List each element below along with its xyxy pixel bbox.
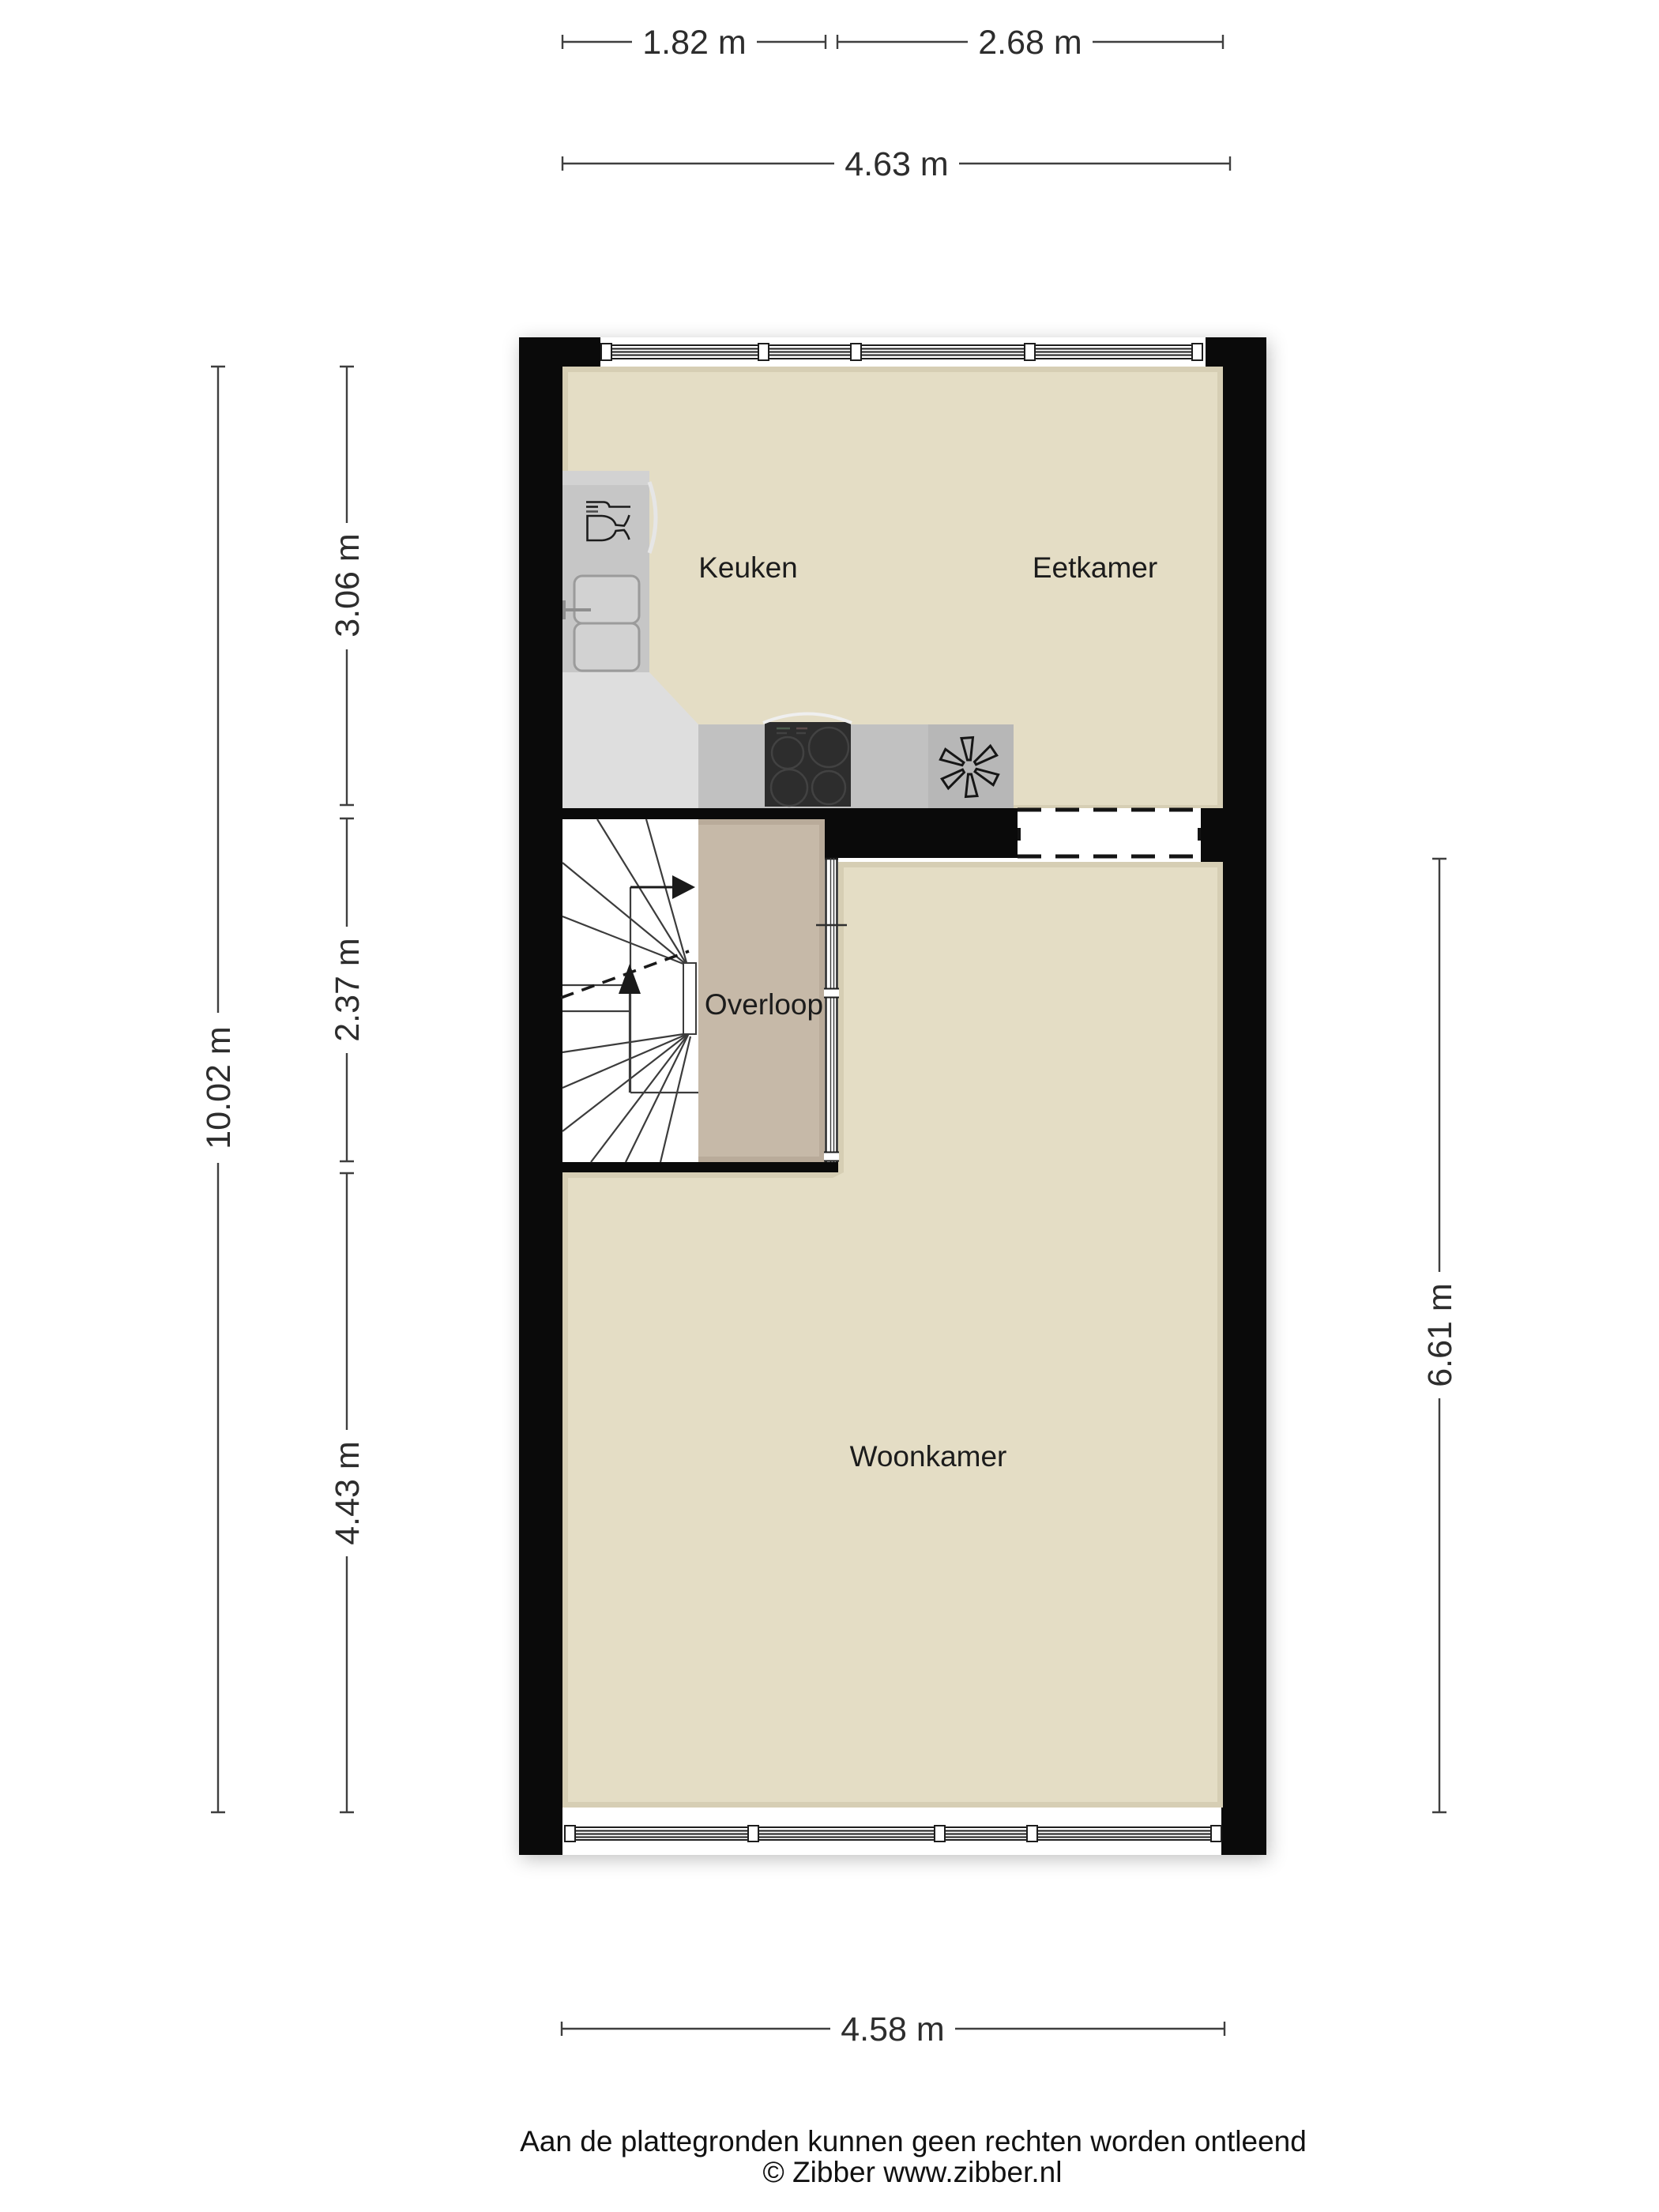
svg-text:2.37 m: 2.37 m [329, 938, 367, 1041]
svg-text:Overloop: Overloop [705, 988, 823, 1021]
svg-text:6.61 m: 6.61 m [1421, 1283, 1459, 1386]
svg-text:Keuken: Keuken [698, 551, 798, 584]
svg-text:1.82 m: 1.82 m [642, 24, 746, 62]
svg-text:Woonkamer: Woonkamer [850, 1440, 1007, 1473]
svg-text:3.06 m: 3.06 m [329, 533, 367, 637]
svg-text:4.43 m: 4.43 m [329, 1441, 367, 1544]
svg-text:Aan de plattegronden kunnen ge: Aan de plattegronden kunnen geen rechten… [520, 2125, 1307, 2157]
svg-text:Eetkamer: Eetkamer [1033, 551, 1157, 584]
svg-text:© Zibber www.zibber.nl: © Zibber www.zibber.nl [763, 2156, 1063, 2188]
svg-text:4.63 m: 4.63 m [845, 145, 948, 183]
svg-text:10.02 m: 10.02 m [200, 1026, 238, 1149]
svg-text:2.68 m: 2.68 m [978, 24, 1082, 62]
svg-text:4.58 m: 4.58 m [841, 2011, 944, 2048]
